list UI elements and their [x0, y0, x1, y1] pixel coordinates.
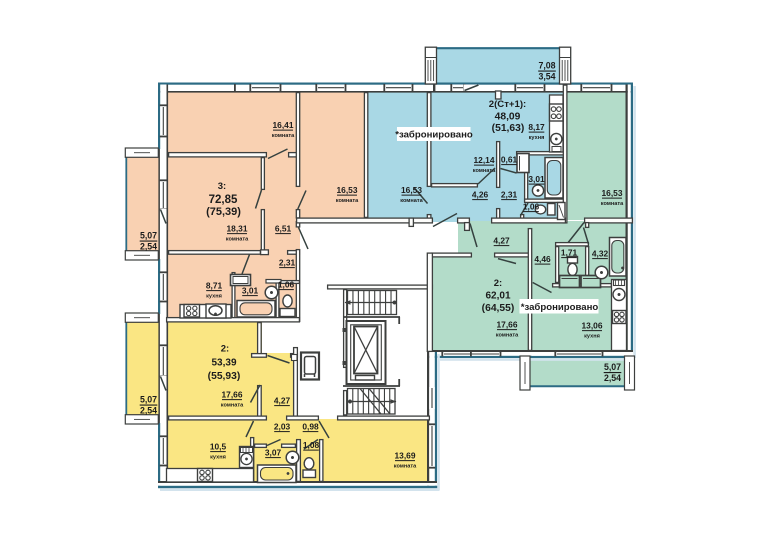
svg-text:кухня: кухня [210, 455, 226, 461]
svg-text:4,32: 4,32 [592, 249, 609, 259]
svg-text:18,31: 18,31 [227, 224, 248, 234]
svg-text:10,5: 10,5 [210, 442, 227, 452]
svg-text:комната: комната [336, 198, 359, 204]
svg-text:16,41: 16,41 [273, 120, 294, 130]
svg-text:2:: 2: [494, 278, 502, 289]
svg-text:2,54: 2,54 [140, 406, 157, 416]
svg-text:0,61: 0,61 [501, 155, 518, 165]
svg-text:3:: 3: [218, 181, 226, 192]
svg-text:2,54: 2,54 [140, 242, 157, 252]
svg-text:53,39: 53,39 [211, 358, 236, 369]
svg-text:2,03: 2,03 [274, 422, 291, 432]
svg-text:7,08: 7,08 [538, 61, 555, 71]
svg-text:комната: комната [226, 237, 249, 243]
svg-text:(64,55): (64,55) [482, 303, 515, 314]
svg-text:12,14: 12,14 [474, 155, 495, 165]
svg-text:3,07: 3,07 [265, 448, 282, 458]
svg-text:комната: комната [601, 201, 624, 207]
svg-text:16,53: 16,53 [602, 188, 623, 198]
svg-text:2(Ст+1):: 2(Ст+1): [489, 99, 527, 110]
svg-text:48,09: 48,09 [495, 112, 521, 123]
svg-text:2,31: 2,31 [279, 258, 296, 268]
svg-text:1,08: 1,08 [303, 440, 320, 450]
svg-text:комната: комната [272, 133, 295, 139]
svg-text:5,07: 5,07 [140, 395, 157, 405]
svg-text:72,85: 72,85 [209, 194, 238, 206]
svg-text:3,01: 3,01 [242, 286, 259, 296]
svg-text:3,01: 3,01 [528, 174, 545, 184]
svg-text:17,66: 17,66 [222, 390, 243, 400]
svg-text:16,53: 16,53 [401, 185, 422, 195]
svg-text:5,07: 5,07 [140, 231, 157, 241]
svg-text:*забронировано: *забронировано [395, 129, 473, 140]
svg-text:4,27: 4,27 [493, 236, 510, 246]
svg-text:1,06: 1,06 [523, 202, 540, 212]
svg-text:(51,63): (51,63) [492, 123, 525, 134]
svg-text:1,71: 1,71 [561, 248, 578, 258]
svg-text:13,69: 13,69 [395, 451, 416, 461]
svg-text:6,51: 6,51 [275, 224, 292, 234]
svg-text:13,06: 13,06 [582, 321, 603, 331]
svg-text:комната: комната [496, 333, 519, 339]
svg-text:2,54: 2,54 [604, 373, 621, 383]
svg-text:кухня: кухня [206, 294, 222, 300]
svg-text:16,53: 16,53 [337, 185, 358, 195]
svg-text:4,46: 4,46 [534, 254, 551, 264]
svg-text:4,26: 4,26 [472, 190, 489, 200]
svg-text:2:: 2: [221, 344, 229, 355]
svg-text:3,54: 3,54 [538, 72, 555, 82]
svg-text:1,06: 1,06 [278, 280, 295, 290]
svg-text:5,07: 5,07 [604, 362, 621, 372]
svg-text:*забронировано: *забронировано [521, 302, 599, 313]
svg-text:17,66: 17,66 [497, 320, 518, 330]
svg-text:(75,39): (75,39) [206, 206, 241, 218]
svg-text:4,27: 4,27 [274, 396, 291, 406]
svg-text:(55,93): (55,93) [208, 371, 241, 382]
svg-text:62,01: 62,01 [485, 291, 510, 302]
svg-text:8,71: 8,71 [206, 281, 223, 291]
svg-text:0,98: 0,98 [302, 422, 319, 432]
svg-text:кухня: кухня [529, 135, 545, 141]
svg-text:комната: комната [394, 464, 417, 470]
svg-text:2,31: 2,31 [501, 190, 518, 200]
svg-text:комната: комната [221, 403, 244, 409]
svg-text:комната: комната [400, 198, 423, 204]
svg-text:кухня: кухня [584, 334, 600, 340]
svg-text:комната: комната [473, 168, 496, 174]
svg-text:8,17: 8,17 [528, 122, 545, 132]
